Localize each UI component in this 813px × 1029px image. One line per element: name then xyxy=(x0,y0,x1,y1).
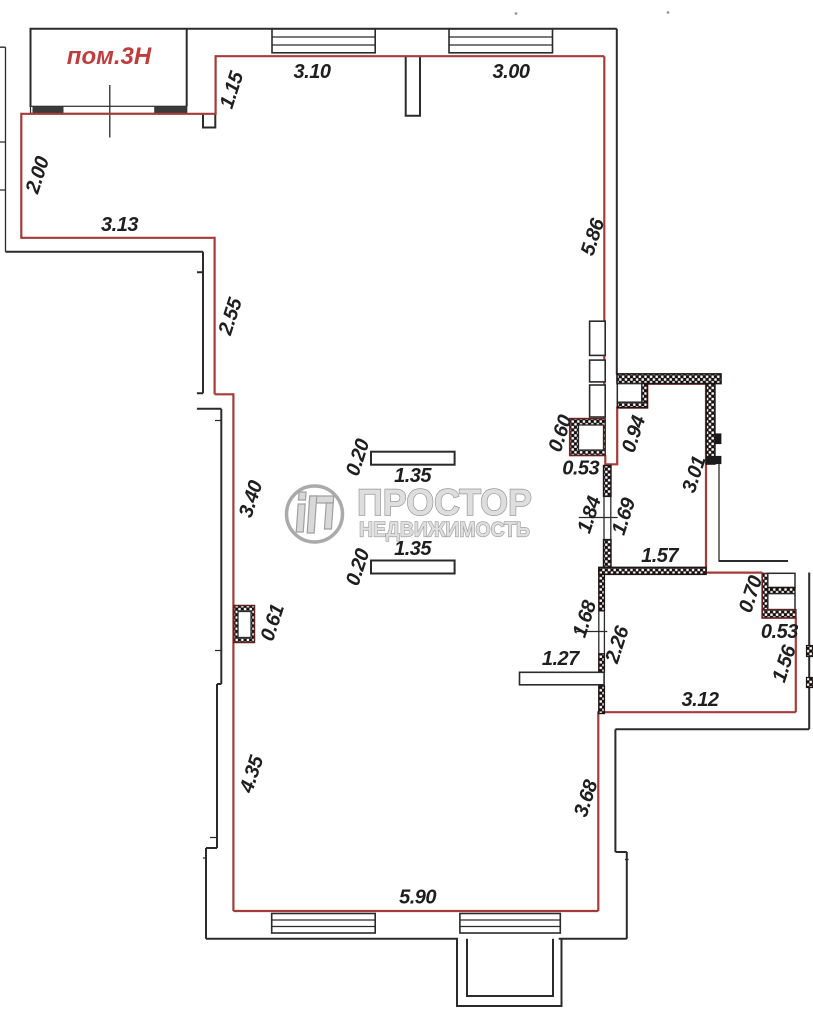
svg-text:1.35: 1.35 xyxy=(394,465,432,487)
svg-text:НЕДВИЖИМОСТЬ: НЕДВИЖИМОСТЬ xyxy=(359,518,530,542)
svg-text:3.00: 3.00 xyxy=(493,61,530,83)
svg-text:5.90: 5.90 xyxy=(399,887,436,909)
svg-text:пом.3Н: пом.3Н xyxy=(67,43,152,70)
svg-text:0.53: 0.53 xyxy=(562,458,599,480)
svg-text:1.35: 1.35 xyxy=(394,538,432,560)
svg-text:0.53: 0.53 xyxy=(761,621,798,643)
svg-text:1.27: 1.27 xyxy=(542,648,580,670)
svg-text:3.12: 3.12 xyxy=(682,689,719,711)
svg-text:3.10: 3.10 xyxy=(294,61,331,83)
svg-text:1.57: 1.57 xyxy=(641,545,679,567)
svg-text:3.13: 3.13 xyxy=(101,214,138,236)
